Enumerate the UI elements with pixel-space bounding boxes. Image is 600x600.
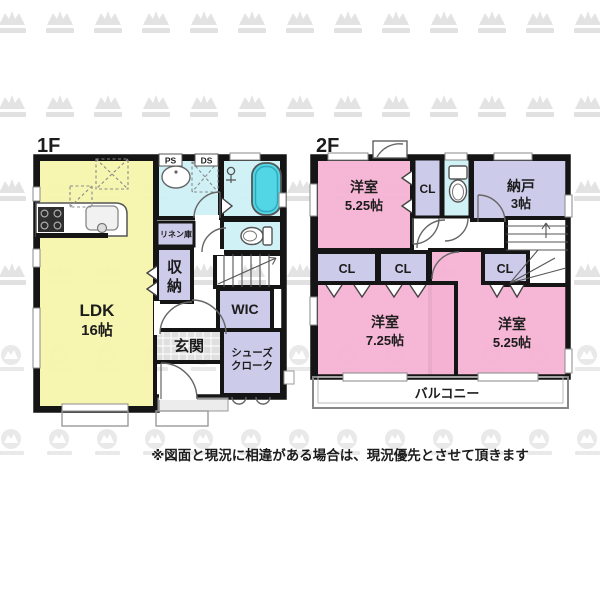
watermark-logo-icon bbox=[334, 11, 362, 33]
disclaimer-text: ※図面と現況に相違がある場合は、現況優先とさせて頂きます bbox=[151, 447, 529, 463]
nando-label: 納戸 bbox=[507, 178, 535, 194]
watermark-logo-icon bbox=[142, 95, 170, 117]
watermark-logo-icon bbox=[47, 429, 72, 455]
washbasin-icon bbox=[162, 166, 190, 188]
watermark-logo-icon bbox=[0, 429, 24, 455]
genkan-label: 玄関 bbox=[174, 337, 204, 355]
yoshitsu-c-label: 洋室 bbox=[498, 316, 526, 332]
watermark-logo-icon bbox=[526, 11, 554, 33]
window bbox=[33, 308, 40, 368]
watermark-logo-icon bbox=[286, 95, 314, 117]
watermark-logo-icon bbox=[94, 11, 122, 33]
watermark-logo-icon bbox=[0, 95, 26, 117]
cl-right-label: CL bbox=[497, 262, 514, 276]
counter-wall bbox=[36, 233, 108, 238]
watermark-logo-icon bbox=[238, 95, 266, 117]
toilet-icon bbox=[241, 228, 263, 245]
balcony-label: バルコニー bbox=[415, 386, 480, 401]
door-arc bbox=[417, 220, 445, 248]
meter-box bbox=[284, 371, 294, 384]
watermark-logo-icon bbox=[574, 95, 600, 117]
watermark-logo-icon bbox=[382, 95, 410, 117]
watermark-logo-icon bbox=[190, 95, 218, 117]
shoes-label-2: クローク bbox=[231, 360, 273, 372]
room-washroom bbox=[157, 159, 220, 218]
watermark-logo-icon bbox=[575, 345, 600, 371]
watermark-logo-icon bbox=[94, 95, 122, 117]
door-opening bbox=[195, 215, 219, 221]
cl-mid-label: CL bbox=[395, 262, 412, 276]
window bbox=[33, 249, 40, 267]
watermark-logo-icon bbox=[238, 11, 266, 33]
watermark-logo-icon bbox=[287, 345, 312, 371]
watermark-logo-icon bbox=[526, 95, 554, 117]
watermark-logo-icon bbox=[575, 429, 600, 455]
shuno-label-1: 収 bbox=[167, 258, 183, 276]
door-opening bbox=[202, 249, 224, 255]
watermark-logo-icon bbox=[527, 429, 552, 455]
linen-label: リネン庫 bbox=[160, 229, 192, 239]
room-ldk bbox=[38, 159, 155, 408]
window bbox=[310, 184, 317, 216]
window bbox=[279, 193, 286, 207]
window bbox=[445, 153, 467, 160]
door-opening bbox=[159, 394, 197, 400]
yoshitsu-a-size: 5.25帖 bbox=[345, 198, 383, 213]
cl-left-label: CL bbox=[339, 262, 356, 276]
window bbox=[478, 373, 538, 381]
shuno-label-2: 納 bbox=[167, 277, 182, 295]
door-arc bbox=[445, 218, 468, 241]
window bbox=[565, 195, 572, 217]
shoes-label-1: シューズ bbox=[231, 346, 273, 359]
watermark-logo-icon bbox=[478, 11, 506, 33]
watermark-logo-icon bbox=[286, 263, 314, 285]
watermark-logo-icon bbox=[46, 11, 74, 33]
ds-label: DS bbox=[201, 156, 213, 166]
watermark-logo-icon bbox=[430, 11, 458, 33]
watermark-logo-icon bbox=[478, 95, 506, 117]
watermark-logo-icon bbox=[430, 95, 458, 117]
watermark-logo-icon bbox=[95, 429, 120, 455]
window bbox=[33, 187, 40, 201]
window bbox=[494, 153, 532, 160]
watermark-logo-icon bbox=[574, 179, 600, 201]
ldk-size-label: 16帖 bbox=[81, 321, 113, 339]
ps-label: PS bbox=[165, 156, 177, 166]
window bbox=[343, 373, 407, 381]
watermark-logo-icon bbox=[0, 345, 24, 371]
room-yoshitsu-b bbox=[316, 283, 456, 377]
wall-opening bbox=[154, 301, 160, 335]
deck-step bbox=[62, 411, 128, 426]
watermark-logo-icon bbox=[190, 11, 218, 33]
ldk-label: LDK bbox=[80, 301, 116, 320]
floor-plan-canvas: 1F bbox=[0, 0, 600, 600]
window bbox=[310, 297, 317, 325]
watermark-logo-icon bbox=[46, 95, 74, 117]
window bbox=[565, 349, 572, 373]
nando-size: 3帖 bbox=[511, 196, 531, 211]
toilet-tank bbox=[263, 227, 272, 245]
washbasin-faucet-icon bbox=[174, 170, 177, 173]
watermark-logo-icon bbox=[0, 179, 26, 201]
watermark-logo-icon bbox=[574, 263, 600, 285]
watermark-logo-icon bbox=[334, 95, 362, 117]
watermark-logo-icon bbox=[0, 11, 26, 33]
floor-2f: 2F bbox=[310, 135, 572, 408]
wic-label: WIC bbox=[231, 301, 258, 317]
yoshitsu-c-size: 5.25帖 bbox=[493, 335, 531, 350]
watermark-logo-icon bbox=[382, 11, 410, 33]
watermark-logo-icon bbox=[574, 11, 600, 33]
watermark-logo-icon bbox=[0, 263, 26, 285]
toilet-tank bbox=[449, 166, 467, 179]
bathtub-icon bbox=[252, 163, 281, 215]
watermark-logo-icon bbox=[286, 11, 314, 33]
yoshitsu-b-label: 洋室 bbox=[371, 314, 399, 330]
yoshitsu-b-size: 7.25帖 bbox=[366, 333, 404, 348]
yoshitsu-a-label: 洋室 bbox=[350, 179, 378, 195]
window bbox=[328, 153, 368, 160]
porch-step bbox=[156, 411, 208, 426]
cl-top-label: CL bbox=[420, 182, 436, 196]
window bbox=[230, 153, 260, 160]
window bbox=[62, 404, 128, 411]
floor-1f-label: 1F bbox=[37, 135, 60, 157]
watermark-logo-icon bbox=[142, 11, 170, 33]
faucet-icon bbox=[98, 224, 107, 233]
